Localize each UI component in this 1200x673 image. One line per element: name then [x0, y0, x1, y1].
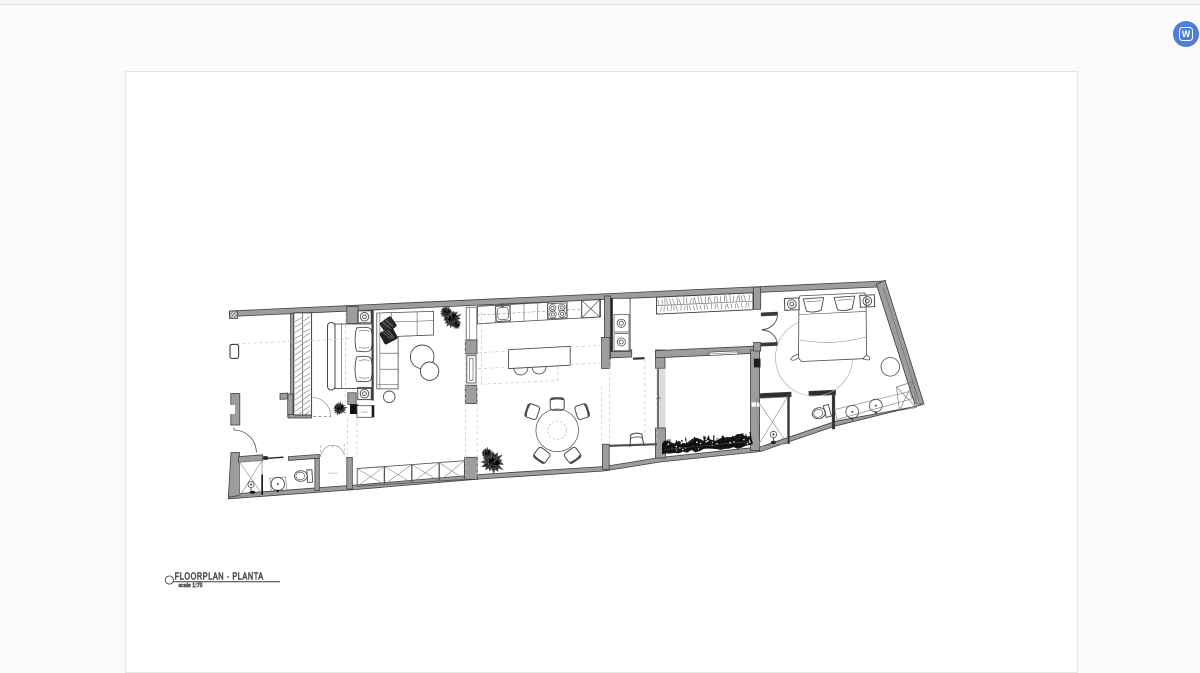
svg-text:FLOORPLAN · PLANTA: FLOORPLAN · PLANTA [175, 572, 264, 583]
svg-text:scale 1:75: scale 1:75 [179, 583, 203, 589]
svg-text:wash: wash [361, 410, 368, 414]
svg-text:trastero: trastero [329, 471, 338, 475]
